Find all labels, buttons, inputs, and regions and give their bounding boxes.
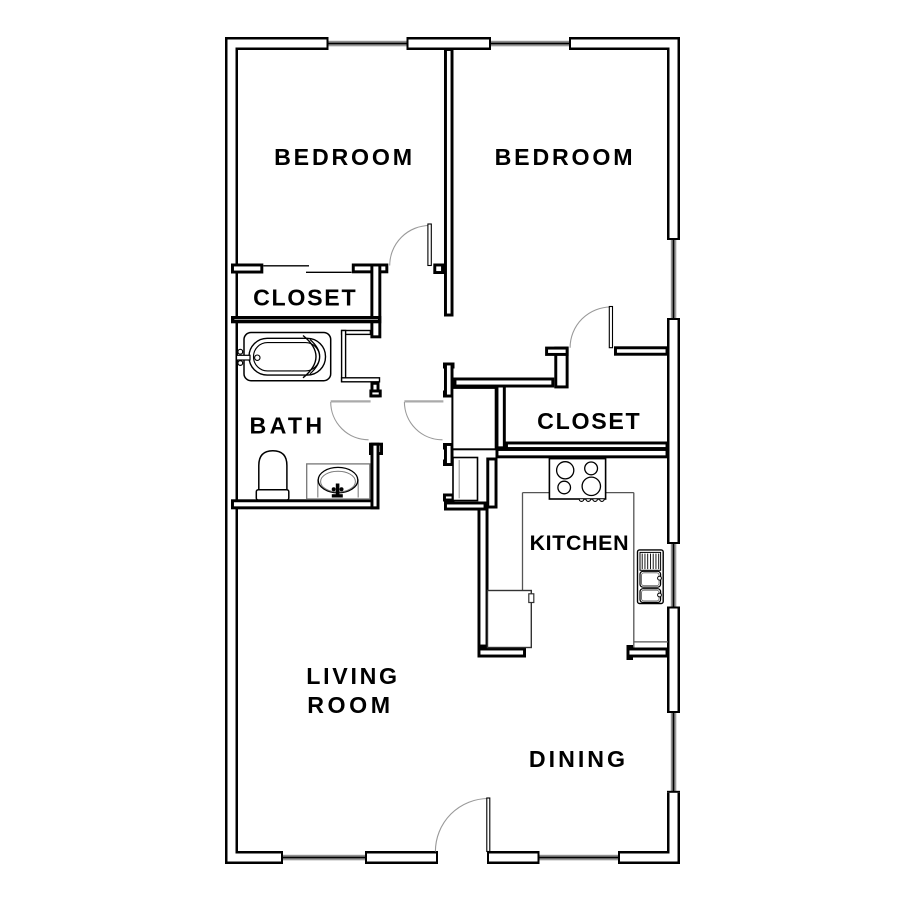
svg-text:BEDROOM: BEDROOM bbox=[274, 144, 415, 170]
svg-text:CLOSET: CLOSET bbox=[253, 285, 357, 311]
svg-text:DINING: DINING bbox=[529, 746, 628, 772]
svg-text:ROOM: ROOM bbox=[307, 692, 394, 718]
svg-text:LIVING: LIVING bbox=[306, 663, 400, 689]
svg-text:BATH: BATH bbox=[250, 413, 326, 439]
svg-text:CLOSET: CLOSET bbox=[537, 408, 641, 434]
svg-text:BEDROOM: BEDROOM bbox=[495, 144, 636, 170]
svg-text:KITCHEN: KITCHEN bbox=[530, 531, 630, 555]
